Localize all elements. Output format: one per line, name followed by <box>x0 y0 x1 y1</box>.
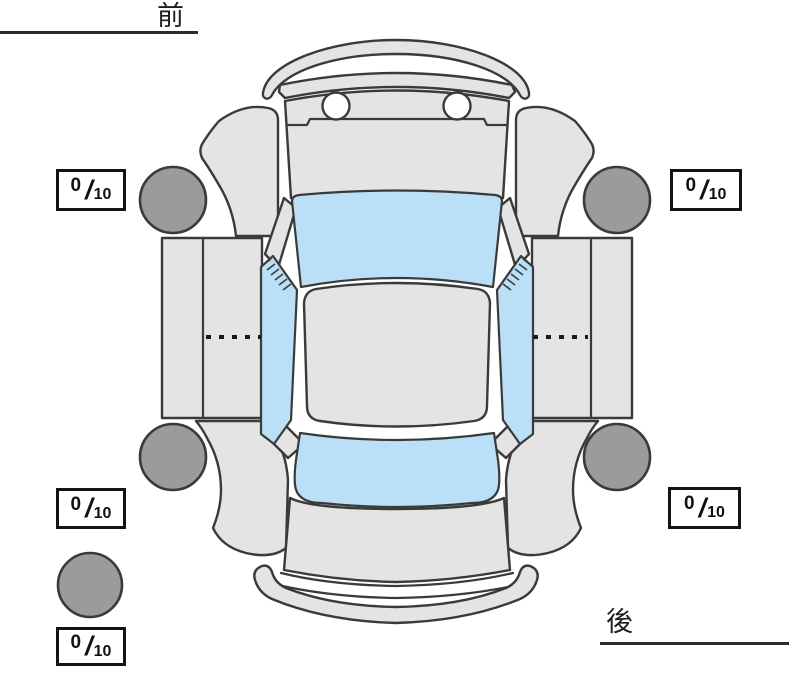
rear-window <box>295 433 500 507</box>
tread-slash: / <box>85 495 93 522</box>
tread-slash: / <box>85 177 93 204</box>
tread-depth-box-rear-left: 0 / 10 <box>56 488 126 529</box>
tread-value: 0 <box>71 175 82 197</box>
front-label-underline <box>0 31 198 34</box>
front-left-tire <box>140 167 206 233</box>
tread-depth-box-front-left: 0 / 10 <box>56 169 126 211</box>
trunk-lid <box>284 498 510 582</box>
tread-max: 10 <box>94 505 112 523</box>
vehicle-inspection-diagram: 前 後 0 / 10 0 / 10 0 / 10 0 / 10 0 / 10 <box>0 0 800 675</box>
tread-depth-box-spare: 0 / 10 <box>56 627 126 666</box>
left-headlight <box>323 93 350 120</box>
front-right-fender <box>516 107 594 236</box>
right-headlight <box>444 93 471 120</box>
tread-depth-box-rear-right: 0 / 10 <box>668 487 741 529</box>
tread-max: 10 <box>94 186 112 204</box>
tread-max: 10 <box>707 504 725 522</box>
windshield <box>292 191 502 288</box>
tread-value: 0 <box>684 493 695 515</box>
tread-value: 0 <box>71 494 82 516</box>
rear-left-tire <box>140 424 206 490</box>
tread-depth-box-front-right: 0 / 10 <box>670 169 742 211</box>
rear-label-underline <box>600 642 789 645</box>
spare-tire <box>58 553 122 617</box>
left-door-panel <box>162 238 262 418</box>
tread-value: 0 <box>71 632 82 654</box>
hood <box>285 91 509 199</box>
tread-max: 10 <box>94 643 112 661</box>
tread-slash: / <box>699 495 707 522</box>
rear-right-tire <box>584 424 650 490</box>
rear-label: 後 <box>606 609 633 636</box>
tread-slash: / <box>85 633 93 660</box>
tread-value: 0 <box>686 175 697 197</box>
tread-max: 10 <box>709 186 727 204</box>
car-top-view-svg <box>0 0 800 675</box>
roof <box>304 283 490 427</box>
tread-slash: / <box>700 177 708 204</box>
right-door-panel <box>532 238 632 418</box>
front-label: 前 <box>157 3 184 30</box>
front-left-fender <box>200 107 278 236</box>
front-right-tire <box>584 167 650 233</box>
